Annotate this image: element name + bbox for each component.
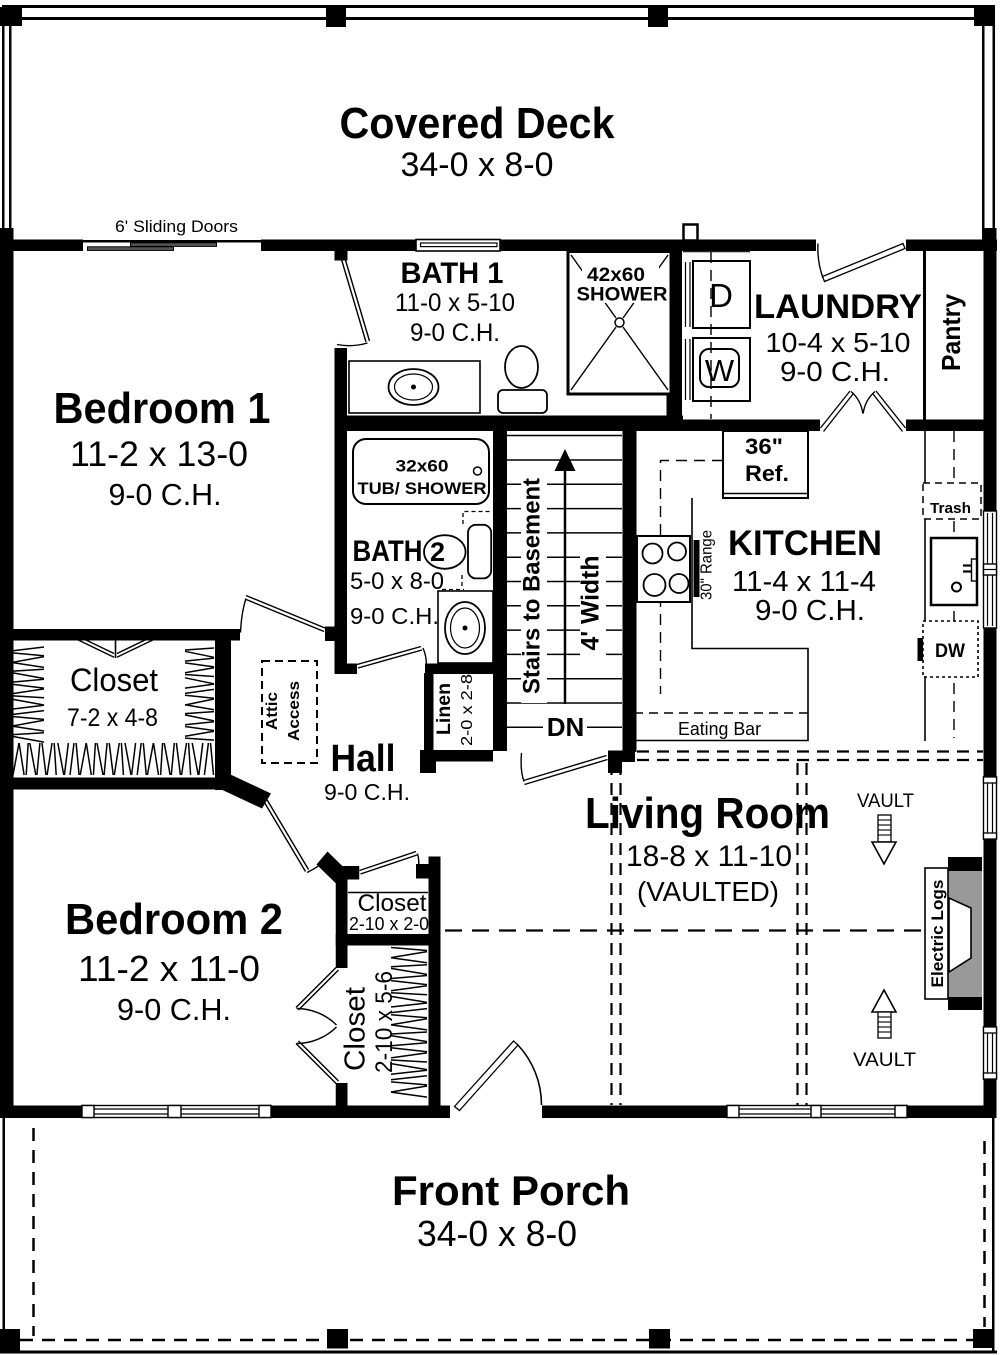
svg-text:9-0 C.H.: 9-0 C.H. [117, 992, 231, 1027]
svg-text:6' Sliding Doors: 6' Sliding Doors [115, 217, 238, 236]
svg-text:(VAULTED): (VAULTED) [637, 876, 779, 907]
svg-text:Closet: Closet [358, 890, 427, 917]
svg-text:18-8 x 11-10: 18-8 x 11-10 [626, 840, 792, 873]
svg-text:DW: DW [935, 641, 965, 662]
svg-text:BATH: BATH [353, 535, 423, 568]
svg-text:TUB/ SHOWER: TUB/ SHOWER [358, 479, 487, 498]
svg-text:32x60: 32x60 [396, 457, 449, 476]
svg-text:9-0 C.H.: 9-0 C.H. [780, 356, 890, 387]
svg-text:Living Room: Living Room [585, 789, 830, 838]
svg-text:Pantry: Pantry [936, 293, 966, 371]
svg-text:Closet: Closet [340, 987, 372, 1071]
svg-text:Ref.: Ref. [745, 461, 789, 486]
svg-text:9-0 C.H.: 9-0 C.H. [324, 779, 410, 805]
svg-text:Eating Bar: Eating Bar [678, 719, 761, 739]
svg-text:VAULT: VAULT [857, 791, 914, 812]
svg-text:VAULT: VAULT [853, 1050, 916, 1071]
svg-text:9-0 C.H.: 9-0 C.H. [410, 319, 500, 347]
svg-text:Closet: Closet [70, 662, 158, 698]
svg-text:Access: Access [286, 681, 303, 741]
svg-text:10-4 x 5-10: 10-4 x 5-10 [766, 327, 911, 358]
svg-text:11-0 x 5-10: 11-0 x 5-10 [395, 289, 515, 317]
svg-text:2-10 x 5-6: 2-10 x 5-6 [371, 971, 398, 1073]
svg-text:Front Porch: Front Porch [392, 1167, 630, 1214]
svg-text:42x60: 42x60 [587, 265, 645, 286]
svg-text:11-4 x 11-4: 11-4 x 11-4 [732, 566, 876, 598]
svg-text:SHOWER: SHOWER [577, 285, 668, 306]
svg-text:7-2 x 4-8: 7-2 x 4-8 [67, 704, 158, 732]
svg-text:Trash: Trash [930, 500, 971, 517]
svg-text:Covered Deck: Covered Deck [340, 99, 615, 148]
svg-text:5-0 x 8-0: 5-0 x 8-0 [350, 568, 444, 595]
svg-text:11-2 x 13-0: 11-2 x 13-0 [70, 435, 248, 474]
svg-text:2-10 x 2-0: 2-10 x 2-0 [349, 914, 429, 934]
svg-text:9-0 C.H.: 9-0 C.H. [755, 595, 865, 627]
svg-text:11-2 x 11-0: 11-2 x 11-0 [78, 948, 260, 989]
svg-text:LAUNDRY: LAUNDRY [754, 288, 922, 326]
svg-text:Hall: Hall [331, 738, 396, 780]
svg-text:DN: DN [547, 712, 585, 742]
svg-text:34-0 x 8-0: 34-0 x 8-0 [401, 146, 554, 184]
svg-text:Bedroom 1: Bedroom 1 [54, 384, 271, 433]
svg-text:2: 2 [430, 537, 445, 567]
svg-text:Bedroom 2: Bedroom 2 [65, 895, 283, 944]
svg-text:Electric Logs: Electric Logs [928, 880, 947, 988]
svg-text:BATH 1: BATH 1 [401, 257, 504, 290]
svg-text:KITCHEN: KITCHEN [728, 524, 882, 563]
svg-text:Attic: Attic [264, 692, 281, 730]
svg-text:D: D [709, 277, 733, 314]
svg-text:2-0 x 2-8: 2-0 x 2-8 [459, 674, 476, 746]
svg-text:Linen: Linen [434, 683, 455, 735]
svg-text:9-0 C.H.: 9-0 C.H. [350, 603, 439, 629]
svg-text:30" Range: 30" Range [699, 530, 716, 600]
svg-text:36": 36" [745, 434, 783, 459]
svg-text:Stairs to Basement: Stairs to Basement [519, 478, 546, 694]
svg-text:4' Width: 4' Width [577, 556, 605, 651]
svg-text:W: W [705, 353, 735, 388]
svg-text:9-0 C.H.: 9-0 C.H. [109, 477, 222, 512]
svg-text:34-0 x 8-0: 34-0 x 8-0 [417, 1213, 577, 1254]
